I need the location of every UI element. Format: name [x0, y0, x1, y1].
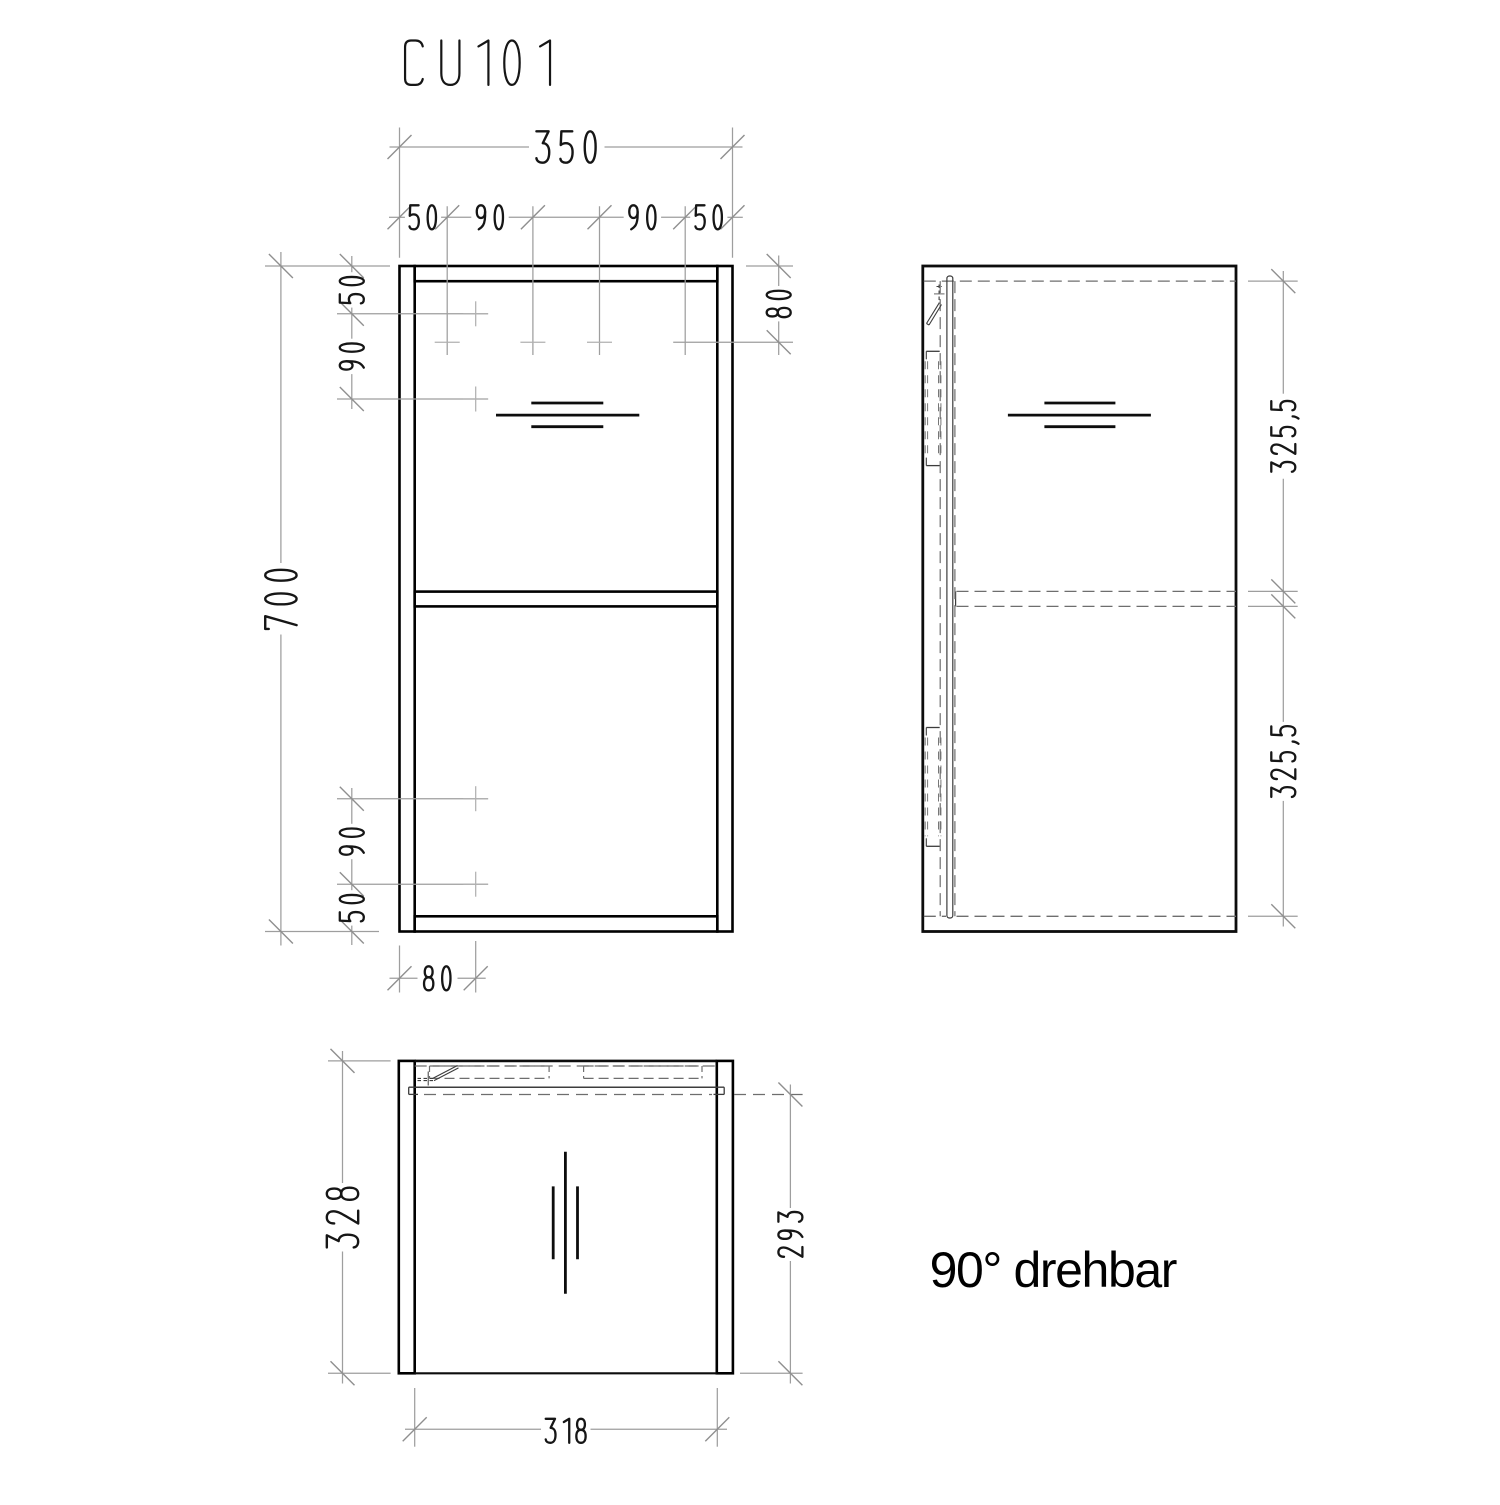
- svg-text:90° drehbar: 90° drehbar: [930, 1242, 1177, 1298]
